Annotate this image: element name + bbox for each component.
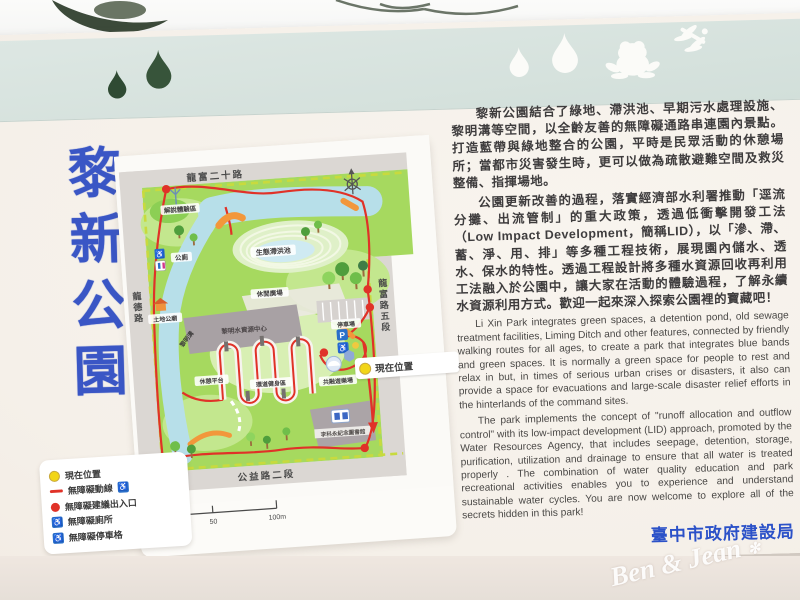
water-drop-white-icon: [549, 29, 581, 76]
water-drop-foliage-icon: [143, 46, 174, 91]
library-book-icon: [331, 409, 350, 423]
dragonfly-icon: [667, 21, 718, 64]
yellow-circle-icon: [49, 470, 61, 482]
intro-paragraph-en-1: Li Xin Park integrates green spaces, a d…: [457, 310, 791, 413]
map-legend: 現在位置 無障礙動線 ♿ 無障礙建議出入口 ♿ 無障礙廁所 ♿ 無障礙停車格: [39, 451, 193, 554]
water-drop-white-icon: [507, 44, 531, 79]
description-text: 黎新公園結合了綠地、滯洪池、早期污水處理設施、黎明溝等空間，以全齡友善的無障礙通…: [451, 97, 796, 580]
wheelchair-icon: ♿: [51, 516, 63, 528]
red-line-icon: [50, 489, 63, 493]
water-drop-foliage-icon: [106, 68, 129, 101]
svg-text:P: P: [339, 330, 346, 340]
wheelchair-icon: ♿: [52, 532, 64, 544]
intro-paragraph-zh-2: 公園更新改善的過程，落實經濟部水利署推動「逕流分攤、出流管制」的重大政策，透過低…: [453, 186, 788, 316]
current-location-label: 現在位置: [375, 358, 414, 375]
watermark-star-icon: ✻: [746, 540, 762, 558]
red-dot-icon: [51, 502, 61, 512]
svg-text:♿: ♿: [155, 249, 165, 259]
wheelchair-icon: ♿: [117, 481, 129, 493]
road-left-label: 龍德路: [130, 291, 145, 325]
svg-text:50: 50: [209, 518, 217, 526]
svg-text:100m: 100m: [268, 514, 286, 522]
current-location-dot: [359, 362, 372, 375]
frog-icon: [601, 35, 664, 81]
intro-paragraph-en-2: The park implements the concept of "runo…: [459, 406, 794, 522]
information-sign-board: 黎新公園: [0, 12, 800, 575]
intro-paragraph-zh-1: 黎新公園結合了綠地、滯洪池、早期污水處理設施、黎明溝等空間，以全齡友善的無障礙通…: [451, 97, 785, 192]
